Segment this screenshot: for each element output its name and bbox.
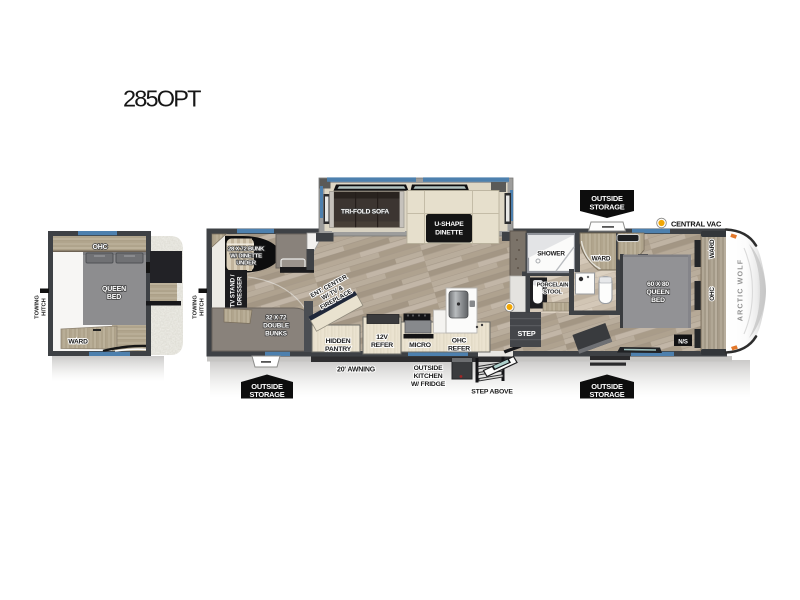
- svg-text:OUTSIDE: OUTSIDE: [414, 365, 443, 372]
- svg-text:REFER: REFER: [448, 346, 470, 353]
- svg-text:STEP: STEP: [518, 329, 536, 338]
- svg-text:PANTRY: PANTRY: [325, 346, 352, 353]
- svg-text:STORAGE: STORAGE: [249, 390, 284, 399]
- svg-text:WARD: WARD: [68, 339, 88, 346]
- svg-text:UNDER: UNDER: [236, 261, 257, 267]
- svg-text:ARCTIC WOLF: ARCTIC WOLF: [736, 259, 745, 321]
- svg-text:HIDDEN: HIDDEN: [326, 338, 351, 345]
- svg-text:REFER: REFER: [371, 342, 393, 349]
- svg-text:BUNKS: BUNKS: [265, 331, 288, 338]
- svg-text:32 X 72: 32 X 72: [266, 315, 287, 322]
- svg-text:W/ FRIDGE: W/ FRIDGE: [411, 381, 446, 388]
- svg-text:OHC: OHC: [93, 244, 108, 251]
- svg-text:TV STAND /: TV STAND /: [231, 274, 237, 307]
- svg-text:TOWING: TOWING: [35, 295, 41, 319]
- svg-text:BED: BED: [107, 294, 121, 301]
- svg-text:STEP ABOVE: STEP ABOVE: [471, 389, 513, 396]
- svg-text:WARD: WARD: [592, 256, 611, 263]
- svg-text:HITCH: HITCH: [200, 298, 206, 316]
- svg-text:STORAGE: STORAGE: [589, 390, 624, 399]
- svg-text:20' AWNING: 20' AWNING: [337, 367, 376, 374]
- svg-text:DRESSER: DRESSER: [238, 276, 244, 306]
- svg-text:BED: BED: [651, 297, 665, 304]
- svg-text:SHOWER: SHOWER: [537, 251, 565, 258]
- svg-text:CENTRAL VAC: CENTRAL VAC: [671, 220, 722, 229]
- svg-text:U-SHAPE: U-SHAPE: [434, 221, 464, 228]
- svg-text:QUEEN: QUEEN: [646, 289, 669, 296]
- svg-text:DINETTE: DINETTE: [435, 230, 463, 237]
- svg-text:STORAGE: STORAGE: [589, 203, 624, 212]
- svg-text:MICRO: MICRO: [409, 342, 431, 349]
- svg-text:28 X 72 BUNK: 28 X 72 BUNK: [228, 247, 265, 253]
- svg-text:WARD: WARD: [709, 239, 716, 258]
- svg-text:STOOL: STOOL: [543, 290, 562, 296]
- svg-text:12V: 12V: [376, 334, 388, 341]
- svg-text:W/ DINETTE: W/ DINETTE: [230, 254, 262, 260]
- svg-text:OHC: OHC: [452, 338, 467, 345]
- svg-text:HITCH: HITCH: [42, 298, 48, 316]
- svg-text:TRI-FOLD SOFA: TRI-FOLD SOFA: [341, 209, 389, 216]
- svg-text:QUEEN: QUEEN: [102, 286, 126, 293]
- svg-text:KITCHEN: KITCHEN: [414, 373, 443, 380]
- svg-text:PORCELAIN: PORCELAIN: [537, 283, 569, 289]
- svg-text:N/S: N/S: [678, 340, 688, 346]
- svg-text:OHC: OHC: [709, 287, 716, 301]
- svg-text:TOWING: TOWING: [193, 295, 199, 319]
- svg-text:60 X 80: 60 X 80: [647, 281, 669, 288]
- svg-text:285OPT: 285OPT: [123, 86, 201, 112]
- svg-text:DOUBLE: DOUBLE: [263, 323, 290, 330]
